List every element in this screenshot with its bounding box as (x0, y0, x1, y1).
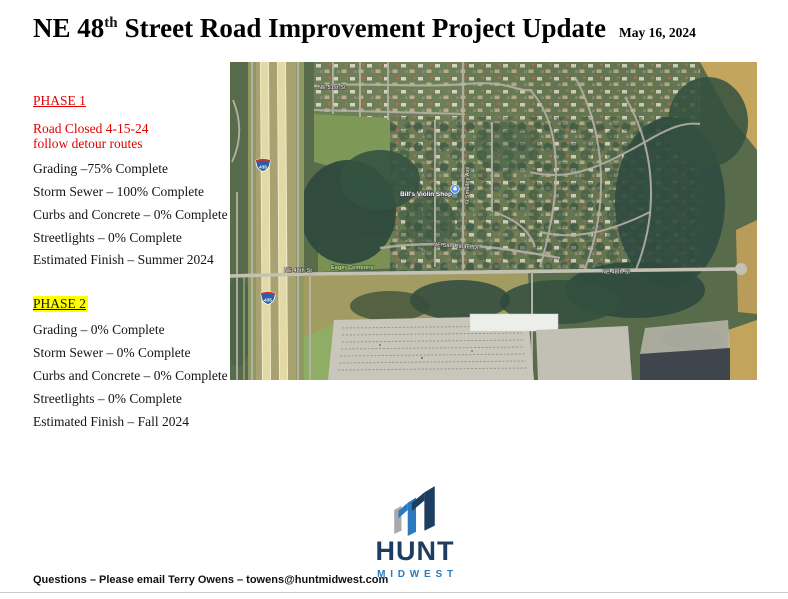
route-number: 435 (259, 164, 267, 169)
phase2-heading-wrap: PHASE 2 (33, 296, 88, 312)
map-label-bills-violin-shop: Bill's Violin Shop (400, 191, 452, 198)
phase1-item-finish: Estimated Finish – Summer 2024 (33, 252, 214, 268)
route-number: 435 (264, 297, 272, 302)
phase2-item-streetlights: Streetlights – 0% Complete (33, 391, 182, 407)
phase2-heading: PHASE 2 (33, 296, 88, 312)
contact-footer: Questions – Please email Terry Owens – t… (33, 574, 388, 586)
road-closed-line1: Road Closed 4-15-24 (33, 121, 149, 136)
map-label-ne-51st-st: NE 51st St (318, 85, 346, 91)
map-label-ne-48th-st-west: NE 48th St (284, 268, 312, 274)
title-text-rest: Street Road Improvement Project Update (125, 13, 606, 43)
phase1-heading: PHASE 1 (33, 93, 86, 109)
map-label-eager-cemetery: Eager Cemetery (331, 265, 374, 271)
phase1-item-grading: Grading –75% Complete (33, 161, 168, 177)
satellite-map-image: 435 435 NE 51st St N Smalley Ave Bill's … (230, 62, 757, 380)
phase2-item-curbs: Curbs and Concrete – 0% Complete (33, 368, 228, 384)
phase1-item-streetlights: Streetlights – 0% Complete (33, 230, 182, 246)
project-area-satellite-map: 435 435 NE 51st St N Smalley Ave Bill's … (230, 62, 757, 380)
title-text: NE 48 (33, 13, 104, 43)
phase1-item-curbs: Curbs and Concrete – 0% Complete (33, 207, 228, 223)
hunt-midwest-logo: HUNT MIDWEST (349, 484, 481, 580)
page-title: NE 48thStreet Road Improvement Project U… (33, 13, 696, 44)
phase1-item-storm-sewer: Storm Sewer – 100% Complete (33, 184, 204, 200)
title-superscript: th (104, 15, 117, 31)
phase2-item-finish: Estimated Finish – Fall 2024 (33, 414, 189, 430)
logo-wordmark-hunt: HUNT (349, 538, 481, 565)
phase2-item-storm-sewer: Storm Sewer – 0% Complete (33, 345, 190, 361)
report-date: May 16, 2024 (619, 25, 696, 40)
footer-divider (0, 592, 788, 593)
road-closed-line2: follow detour routes (33, 136, 149, 151)
phase2-item-grading: Grading – 0% Complete (33, 322, 165, 338)
hunt-midwest-logo-mark-icon (387, 484, 443, 536)
map-label-n-smalley-ave: N Smalley Ave (465, 166, 471, 204)
page: NE 48thStreet Road Improvement Project U… (0, 0, 788, 599)
phase1-road-closed-notice: Road Closed 4-15-24 follow detour routes (33, 121, 149, 151)
map-label-ne-48th-st-east: NE 48th St (602, 270, 630, 276)
